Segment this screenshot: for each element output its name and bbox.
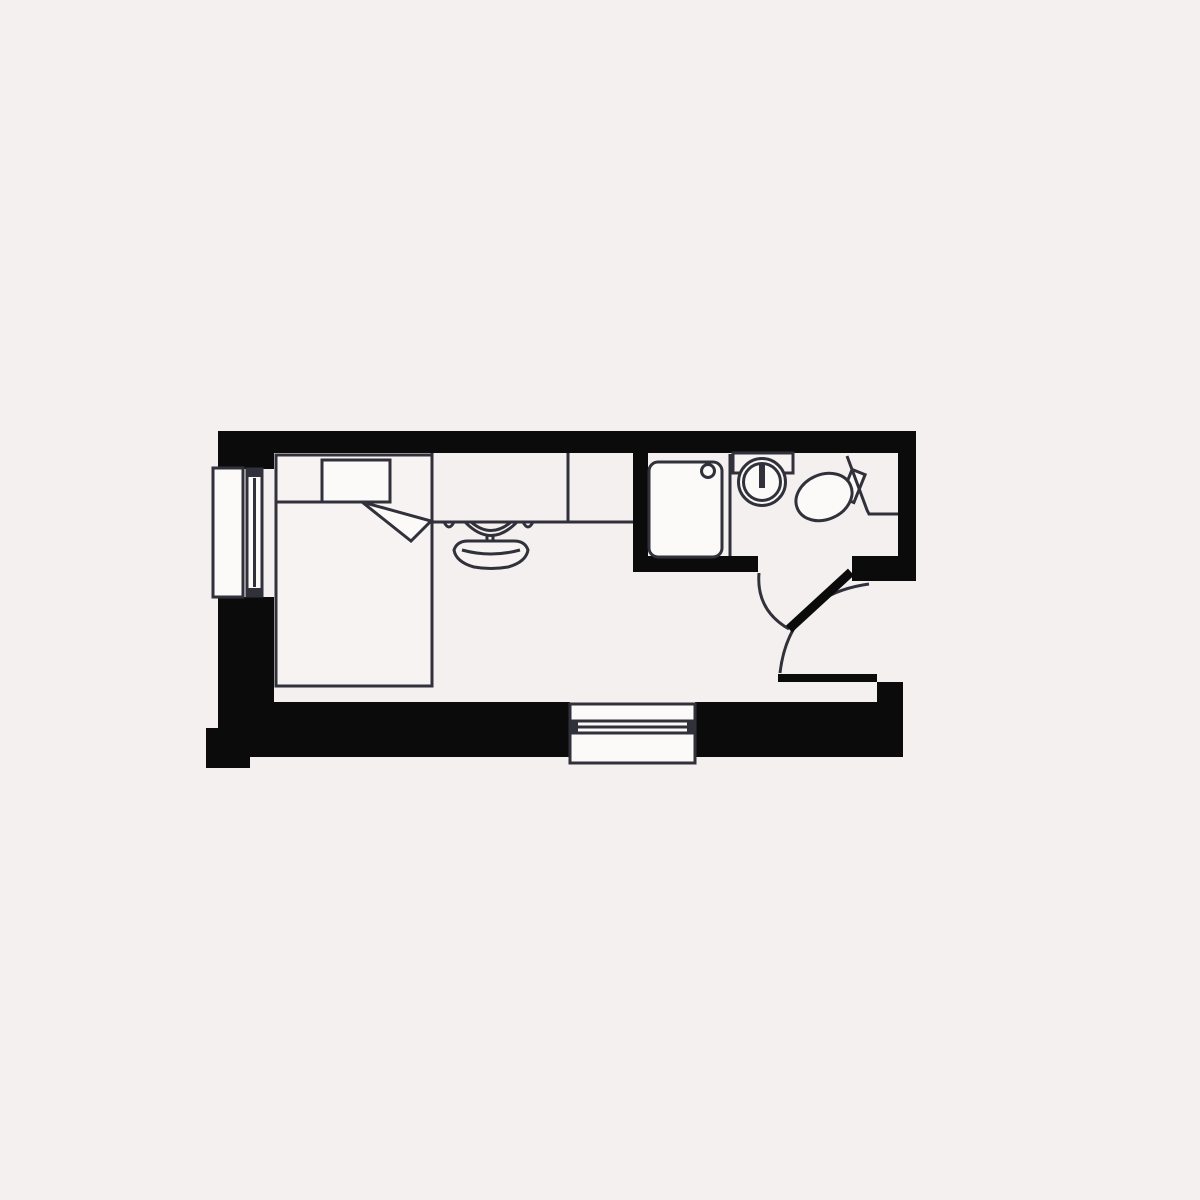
wall-bottom-right — [695, 702, 877, 757]
pillow — [322, 460, 390, 502]
window-bottom-frame — [570, 704, 695, 721]
window-bottom-cap-left — [570, 720, 578, 734]
wall-top — [218, 431, 916, 453]
entrance-door-leaf — [778, 674, 877, 682]
window-left-sill — [213, 468, 243, 597]
wall-door-jamb-pier — [852, 556, 916, 581]
wall-bottom-left — [218, 702, 570, 757]
window-bottom-sill — [570, 733, 695, 763]
background — [0, 0, 1200, 1200]
wall-bathroom-divider — [633, 453, 648, 572]
window-left — [213, 468, 263, 597]
bed — [276, 455, 432, 686]
sink-tap — [759, 465, 765, 488]
floor-plan-canvas — [0, 0, 1200, 1200]
window-bottom-cap-right — [687, 720, 695, 734]
window-bottom — [570, 704, 695, 763]
shower — [649, 454, 730, 557]
wall-block-bottom-right — [877, 682, 903, 757]
window-left-cap-top — [246, 468, 263, 477]
window-left-cap-bottom — [246, 588, 263, 597]
wall-left-upper — [218, 431, 274, 469]
